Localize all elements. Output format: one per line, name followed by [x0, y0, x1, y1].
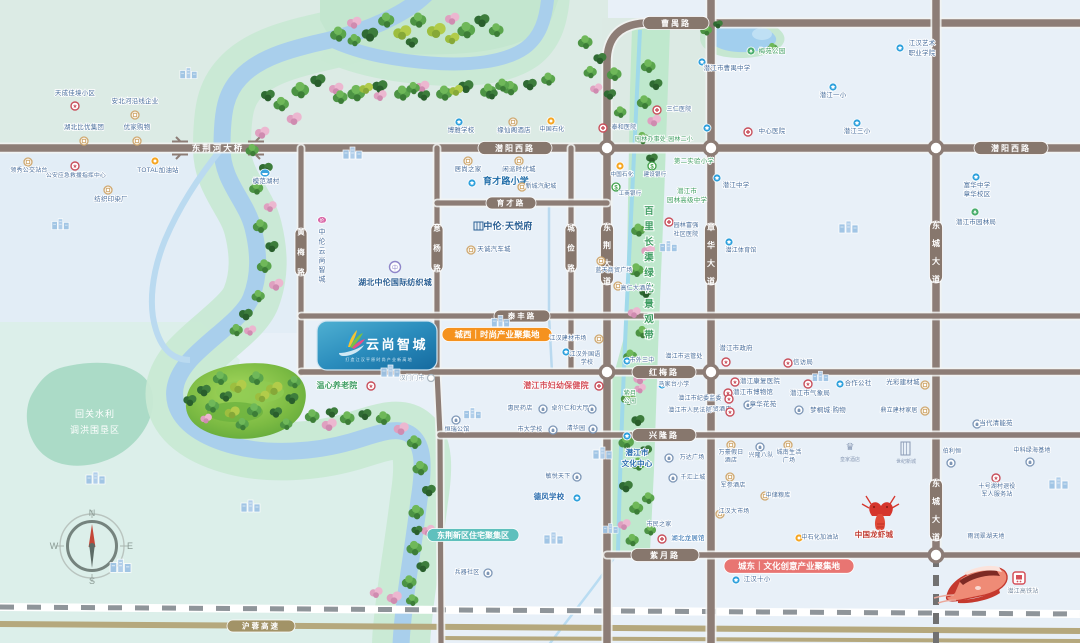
svg-text:潜江三小: 潜江三小 [844, 126, 871, 135]
svg-text:红梅路: 红梅路 [649, 367, 679, 377]
svg-text:俭: 俭 [566, 243, 575, 253]
svg-text:潜江市博物馆: 潜江市博物馆 [733, 387, 774, 396]
svg-text:公园: 公园 [624, 398, 636, 405]
svg-text:市外三中: 市外三中 [630, 356, 655, 364]
svg-text:城东｜文化创意产业聚集地: 城东｜文化创意产业聚集地 [738, 561, 841, 571]
svg-text:江汉大市场: 江汉大市场 [718, 507, 749, 515]
svg-text:★: ★ [785, 360, 790, 367]
svg-text:中国石化: 中国石化 [611, 170, 634, 178]
svg-text:雨润翠湖天地: 雨润翠湖天地 [967, 532, 1004, 540]
svg-text:潜江市园林局: 潜江市园林局 [956, 217, 996, 226]
svg-text:潜江市气象局: 潜江市气象局 [790, 388, 830, 397]
svg-text:紫月: 紫月 [624, 389, 636, 397]
svg-text:职业学院: 职业学院 [909, 48, 936, 57]
svg-text:湖北龙展馆: 湖北龙展馆 [671, 533, 705, 542]
svg-text:道: 道 [932, 274, 940, 284]
svg-text:大: 大 [932, 256, 940, 266]
svg-text:江汉建材市场: 江汉建材市场 [549, 334, 586, 342]
svg-text:E: E [127, 541, 133, 551]
svg-text:园林高级中学: 园林高级中学 [667, 195, 708, 204]
svg-text:兴隆路: 兴隆路 [649, 430, 679, 440]
svg-text:梅: 梅 [297, 247, 305, 257]
svg-text:富华中学: 富华中学 [964, 180, 991, 189]
svg-text:中国石化: 中国石化 [540, 125, 565, 133]
svg-text:中科绿海基地: 中科绿海基地 [1013, 446, 1050, 454]
svg-text:东荆河大桥: 东荆河大桥 [192, 143, 245, 153]
svg-text:新城汽配城: 新城汽配城 [525, 182, 556, 190]
svg-text:江汉外国语: 江汉外国语 [569, 350, 600, 358]
svg-text:长: 长 [644, 236, 654, 248]
svg-text:天成佳境小区: 天成佳境小区 [55, 88, 95, 97]
svg-text:潜江市政府: 潜江市政府 [719, 343, 753, 352]
svg-text:温心养老院: 温心养老院 [317, 380, 358, 390]
svg-text:伯利恒: 伯利恒 [943, 447, 962, 455]
svg-text:潜江中学: 潜江中学 [723, 180, 750, 189]
svg-text:皇家酒店: 皇家酒店 [840, 456, 860, 463]
svg-text:东: 东 [932, 478, 940, 488]
svg-text:意: 意 [433, 223, 441, 233]
svg-text:泰和医院: 泰和医院 [612, 123, 637, 131]
svg-text:潜江体育馆: 潜江体育馆 [725, 246, 756, 254]
svg-text:建设银行: 建设银行 [644, 170, 667, 178]
svg-text:城: 城 [932, 238, 940, 248]
svg-text:潜江市妇幼保健院: 潜江市妇幼保健院 [523, 380, 589, 390]
svg-text:潜阳西路: 潜阳西路 [495, 143, 535, 153]
svg-text:万达广场: 万达广场 [680, 453, 705, 461]
svg-text:泰丰路: 泰丰路 [507, 311, 537, 321]
svg-text:学校: 学校 [581, 358, 593, 366]
svg-text:模范湖村: 模范湖村 [253, 176, 280, 185]
svg-text:敏悦天下: 敏悦天下 [546, 472, 571, 480]
svg-text:兵器社区: 兵器社区 [455, 568, 480, 576]
svg-text:路: 路 [297, 267, 305, 277]
svg-text:东: 东 [603, 222, 611, 232]
svg-text:★: ★ [993, 475, 998, 482]
svg-text:清华园: 清华园 [567, 424, 586, 432]
svg-text:TOTAL加油站: TOTAL加油站 [137, 165, 179, 174]
svg-text:N: N [89, 508, 96, 518]
svg-text:中伦·天悦府: 中伦·天悦府 [483, 220, 532, 231]
svg-text:军参酒店: 军参酒店 [721, 481, 746, 489]
svg-text:潜江市人民法院: 潜江市人民法院 [668, 406, 711, 414]
svg-text:渠: 渠 [643, 252, 654, 264]
svg-text:绿: 绿 [644, 267, 654, 279]
svg-text:湖北比优集团: 湖北比优集团 [64, 122, 104, 131]
svg-text:东: 东 [932, 220, 940, 230]
svg-text:文化中心: 文化中心 [622, 458, 653, 468]
svg-text:中国龙虾城: 中国龙虾城 [855, 529, 894, 539]
svg-text:章华校区: 章华校区 [964, 189, 991, 198]
svg-text:中石化加油站: 中石化加油站 [801, 533, 838, 541]
svg-text:公安应急救援指挥中心: 公安应急救援指挥中心 [46, 171, 106, 179]
svg-text:城: 城 [932, 496, 940, 506]
svg-text:天诚汽车城: 天诚汽车城 [477, 244, 511, 253]
svg-text:潜江市: 潜江市 [625, 447, 648, 457]
svg-text:领秀公交站台: 领秀公交站台 [10, 166, 47, 174]
svg-text:园林富强: 园林富强 [674, 221, 699, 229]
svg-text:市民之家: 市民之家 [647, 520, 672, 528]
svg-text:博雅学校: 博雅学校 [448, 125, 475, 134]
svg-text:合作公社: 合作公社 [845, 378, 872, 387]
svg-text:梅苑公园: 梅苑公园 [759, 46, 786, 55]
svg-text:章: 章 [707, 222, 715, 232]
svg-text:园林办事处·园林二小: 园林办事处·园林二小 [635, 135, 693, 143]
svg-text:★: ★ [805, 381, 810, 388]
svg-text:广场: 广场 [783, 456, 795, 464]
svg-text:伦: 伦 [320, 217, 325, 224]
svg-text:伦: 伦 [319, 237, 326, 246]
svg-text:潜江市纪委监委: 潜江市纪委监委 [678, 394, 721, 402]
svg-text:潜江市曹禺中学: 潜江市曹禺中学 [704, 63, 751, 72]
svg-text:城: 城 [319, 276, 326, 284]
svg-text:荆: 荆 [603, 240, 611, 250]
svg-text:调洪围垦区: 调洪围垦区 [70, 424, 120, 435]
svg-text:信访局: 信访局 [793, 357, 813, 366]
svg-text:安北河沿线企业: 安北河沿线企业 [112, 96, 159, 105]
svg-text:恒瑞公馆: 恒瑞公馆 [445, 425, 470, 433]
svg-text:★: ★ [732, 379, 737, 386]
svg-text:大: 大 [707, 258, 715, 268]
svg-text:当代清能苑: 当代清能苑 [979, 418, 1013, 427]
svg-text:汉门门市: 汉门门市 [400, 374, 425, 382]
svg-text:杨: 杨 [433, 243, 441, 253]
svg-text:城: 城 [567, 223, 575, 233]
svg-text:中心医院: 中心医院 [759, 126, 786, 135]
svg-text:江汉十小: 江汉十小 [744, 574, 771, 583]
svg-text:千汇上城: 千汇上城 [681, 473, 706, 481]
svg-text:中: 中 [319, 227, 326, 236]
svg-text:鼎立建材家居: 鼎立建材家居 [880, 406, 917, 414]
svg-text:湖北中伦国际纺织城: 湖北中伦国际纺织城 [358, 277, 432, 287]
svg-text:★: ★ [726, 396, 731, 403]
svg-text:东荆新区住宅聚集区: 东荆新区住宅聚集区 [437, 530, 509, 540]
svg-text:沪蓉高速: 沪蓉高速 [242, 621, 280, 631]
svg-text:光彩建材城: 光彩建材城 [886, 377, 920, 386]
svg-text:中储粮库: 中储粮库 [766, 491, 791, 499]
svg-text:潜江一小: 潜江一小 [820, 90, 847, 99]
svg-text:路: 路 [433, 263, 441, 273]
svg-text:★: ★ [727, 409, 732, 416]
svg-text:W: W [50, 541, 59, 551]
svg-text:中: 中 [392, 264, 398, 272]
svg-text:育才路: 育才路 [497, 198, 526, 208]
svg-text:♛: ♛ [846, 442, 855, 453]
svg-text:江汉艺术: 江汉艺术 [909, 38, 936, 47]
svg-text:路: 路 [567, 263, 575, 273]
svg-text:章华花苑: 章华花苑 [750, 399, 777, 408]
svg-text:酒店: 酒店 [725, 456, 737, 464]
svg-text:潜江市运管处: 潜江市运管处 [665, 352, 702, 360]
svg-text:道: 道 [603, 276, 611, 286]
svg-text:百: 百 [644, 206, 654, 217]
svg-text:尚: 尚 [319, 256, 326, 265]
svg-text:梦桐城·购物: 梦桐城·购物 [810, 405, 846, 414]
svg-text:云尚智城: 云尚智城 [366, 337, 428, 352]
svg-text:潜江市: 潜江市 [677, 186, 697, 195]
svg-text:工商银行: 工商银行 [619, 189, 642, 197]
svg-text:打造江汉平原时尚产业新高地: 打造江汉平原时尚产业新高地 [345, 356, 413, 362]
svg-text:潜江高铁站: 潜江高铁站 [1007, 587, 1038, 595]
svg-text:蓝天商贸广场: 蓝天商贸广场 [595, 266, 632, 274]
svg-text:智: 智 [319, 265, 326, 274]
svg-text:大: 大 [932, 514, 940, 524]
svg-text:★: ★ [723, 359, 728, 366]
svg-text:缘仙阁酒店: 缘仙阁酒店 [497, 125, 531, 134]
svg-text:紫月路: 紫月路 [650, 550, 680, 560]
svg-text:带: 带 [644, 329, 654, 341]
svg-text:道: 道 [707, 276, 715, 286]
svg-text:居尚之家: 居尚之家 [455, 164, 482, 173]
svg-text:观: 观 [643, 315, 654, 326]
svg-text:S: S [89, 576, 95, 586]
svg-text:马家台小学: 马家台小学 [658, 380, 689, 388]
svg-text:云: 云 [319, 247, 326, 255]
svg-text:城南生活: 城南生活 [777, 448, 802, 456]
svg-text:兴隆八队: 兴隆八队 [749, 451, 774, 459]
svg-text:卓尔仁和大厅: 卓尔仁和大厅 [551, 404, 588, 412]
svg-text:华: 华 [707, 240, 715, 250]
svg-text:回关水利: 回关水利 [75, 408, 115, 419]
svg-text:世纪新城: 世纪新城 [896, 458, 916, 465]
svg-text:十号湖村退役: 十号湖村退役 [978, 482, 1015, 490]
svg-text:闲派时代城: 闲派时代城 [502, 164, 536, 173]
svg-text:纺织印染厂: 纺织印染厂 [94, 194, 128, 203]
svg-text:高仁大酒店: 高仁大酒店 [620, 284, 651, 292]
svg-text:三仁医院: 三仁医院 [667, 105, 692, 113]
svg-text:景: 景 [643, 299, 654, 310]
svg-text:城西｜时尚产业聚集地: 城西｜时尚产业聚集地 [454, 330, 540, 340]
svg-text:万豪假日: 万豪假日 [719, 448, 744, 456]
svg-text:潜江康复医院: 潜江康复医院 [740, 376, 781, 385]
svg-text:曹禺路: 曹禺路 [661, 18, 691, 28]
svg-text:第二实验小学: 第二实验小学 [674, 156, 715, 165]
svg-text:里: 里 [644, 222, 654, 233]
svg-text:市大学校: 市大学校 [518, 425, 543, 433]
svg-text:道: 道 [932, 532, 940, 542]
svg-text:黄: 黄 [297, 227, 305, 237]
svg-text:优家购物: 优家购物 [124, 122, 151, 131]
svg-text:惠民药店: 惠民药店 [508, 404, 533, 412]
svg-text:★: ★ [368, 383, 373, 390]
svg-text:军人服务站: 军人服务站 [981, 490, 1012, 498]
svg-text:★: ★ [72, 163, 77, 170]
svg-text:潜阳西路: 潜阳西路 [991, 143, 1031, 153]
svg-text:德风学校: 德风学校 [534, 491, 565, 501]
svg-text:★: ★ [72, 103, 77, 110]
svg-text:社区医院: 社区医院 [674, 230, 699, 238]
